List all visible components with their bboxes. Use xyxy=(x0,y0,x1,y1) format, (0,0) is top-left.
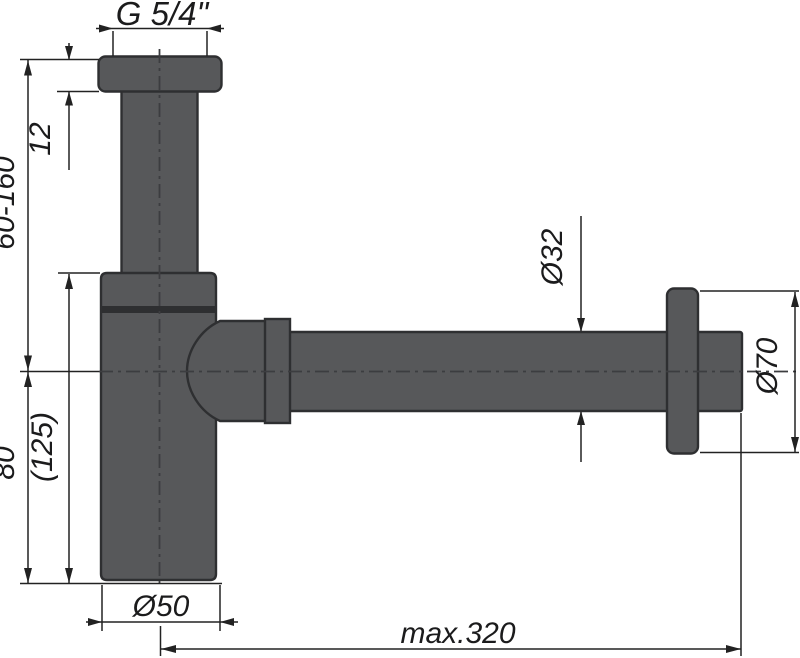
dim-max-length: max.320 xyxy=(161,413,742,656)
siphon-technical-drawing-page: G 5/4" 12 60-160 80 (125) xyxy=(0,0,800,658)
arrowhead xyxy=(88,618,102,626)
arrowhead xyxy=(726,645,741,653)
arrowhead xyxy=(24,356,32,371)
dim-body-diameter: Ø50 xyxy=(86,585,238,631)
arrowhead xyxy=(791,437,799,452)
arrowhead xyxy=(24,568,32,583)
total-body-height-label: (125) xyxy=(26,412,59,482)
siphon-part xyxy=(99,57,743,581)
siphon-technical-drawing: G 5/4" 12 60-160 80 (125) xyxy=(0,0,800,658)
dim-total-body-height: (125) xyxy=(26,274,73,583)
dim-flange-height: 12 xyxy=(24,43,73,170)
arrowhead xyxy=(65,274,73,289)
max-length-label: max.320 xyxy=(400,617,515,650)
dim-thread-size: G 5/4" xyxy=(96,0,224,56)
trap-body xyxy=(101,273,216,580)
flange-height-label: 12 xyxy=(24,122,57,156)
body-diameter-label: Ø50 xyxy=(132,590,190,623)
lower-body-height-label: 80 xyxy=(0,446,21,480)
arrowhead xyxy=(24,61,32,76)
rosette-diameter-label: Ø70 xyxy=(751,337,784,395)
arrowhead xyxy=(161,645,176,653)
arrowhead xyxy=(577,318,585,332)
arrowhead xyxy=(207,25,221,33)
arrowhead xyxy=(791,292,799,307)
body-joint-band xyxy=(101,306,216,313)
dim-adjustable-height: 60-160 xyxy=(0,60,32,371)
arrowhead xyxy=(99,25,113,33)
thread-size-label: G 5/4" xyxy=(116,0,210,32)
adjustable-height-label: 60-160 xyxy=(0,156,21,250)
arrowhead xyxy=(65,46,73,60)
arrowhead xyxy=(577,411,585,425)
arrowhead xyxy=(65,92,73,106)
pipe-diameter-label: Ø32 xyxy=(536,228,569,286)
arrowhead xyxy=(65,568,73,583)
arrowhead xyxy=(220,618,234,626)
arrowhead xyxy=(24,372,32,387)
